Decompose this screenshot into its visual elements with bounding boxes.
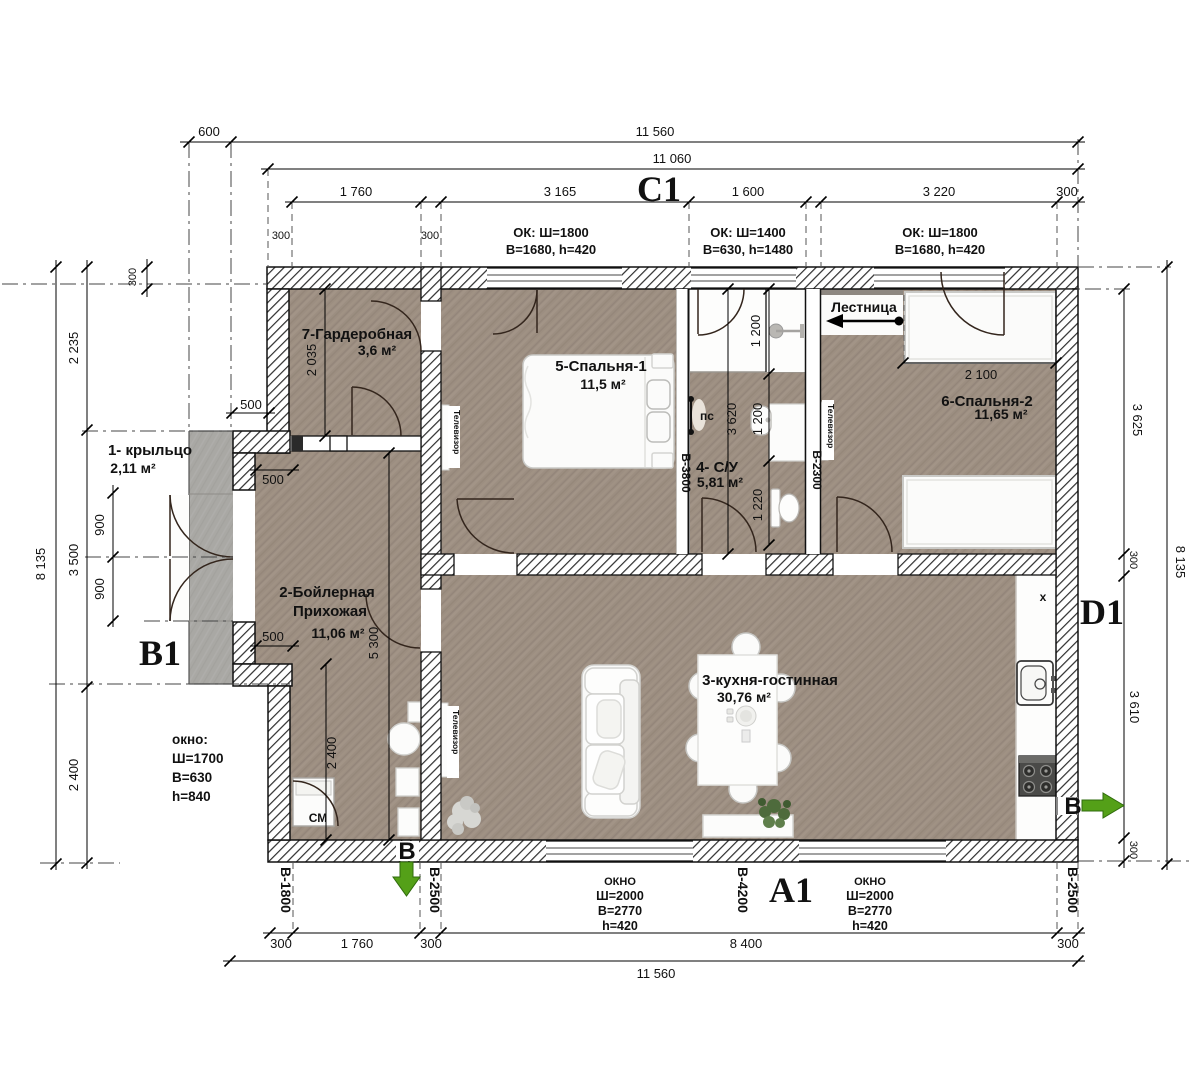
svg-text:11,65 м²: 11,65 м² [974, 406, 1028, 422]
svg-text:3 220: 3 220 [923, 184, 956, 199]
svg-text:Телевизор: Телевизор [451, 710, 461, 754]
svg-text:В=1680, h=420: В=1680, h=420 [895, 242, 985, 257]
svg-text:Лестница: Лестница [831, 299, 897, 315]
svg-text:300: 300 [1127, 551, 1139, 569]
svg-text:D1: D1 [1080, 592, 1124, 632]
svg-text:ОК: Ш=1400: ОК: Ш=1400 [710, 225, 786, 240]
svg-text:Телевизор: Телевизор [452, 410, 462, 454]
svg-text:1 220: 1 220 [750, 489, 765, 522]
svg-text:500: 500 [262, 472, 284, 487]
svg-text:300: 300 [420, 936, 442, 951]
svg-text:5,81 м²: 5,81 м² [697, 474, 743, 490]
svg-text:2 235: 2 235 [66, 332, 81, 365]
svg-text:Ш=1700: Ш=1700 [172, 751, 223, 766]
svg-text:500: 500 [240, 397, 262, 412]
svg-text:1- крыльцо: 1- крыльцо [108, 442, 192, 459]
svg-text:3,6 м²: 3,6 м² [358, 342, 397, 358]
svg-text:1 760: 1 760 [341, 936, 374, 951]
svg-text:h=420: h=420 [602, 919, 638, 933]
svg-text:1 200: 1 200 [748, 315, 763, 348]
svg-text:2,11 м²: 2,11 м² [110, 460, 156, 476]
svg-text:ОКНО: ОКНО [854, 876, 886, 888]
svg-text:3 500: 3 500 [66, 544, 81, 577]
svg-text:В-2500: В-2500 [427, 867, 443, 913]
svg-text:ОК: Ш=1800: ОК: Ш=1800 [513, 225, 589, 240]
svg-text:В-4200: В-4200 [735, 867, 751, 913]
svg-text:300: 300 [127, 268, 139, 286]
svg-text:300: 300 [272, 230, 290, 242]
svg-text:В=630: В=630 [172, 770, 212, 785]
svg-text:300: 300 [1057, 936, 1079, 951]
svg-text:11 560: 11 560 [636, 124, 675, 139]
svg-text:ОК: Ш=1800: ОК: Ш=1800 [902, 225, 978, 240]
svg-text:300: 300 [270, 936, 292, 951]
svg-text:11,06 м²: 11,06 м² [311, 625, 365, 641]
svg-text:3 610: 3 610 [1127, 691, 1142, 724]
svg-text:2 100: 2 100 [965, 367, 998, 382]
svg-text:11 060: 11 060 [653, 151, 692, 166]
svg-text:В=2770: В=2770 [598, 904, 642, 918]
svg-text:В-3800: В-3800 [679, 453, 693, 493]
svg-text:300: 300 [1127, 841, 1139, 859]
svg-text:3-кухня-гостинная: 3-кухня-гостинная [702, 672, 838, 689]
svg-text:900: 900 [92, 514, 107, 536]
svg-text:500: 500 [262, 629, 284, 644]
svg-text:x: x [1040, 590, 1047, 604]
svg-text:Прихожая: Прихожая [293, 603, 367, 620]
svg-text:B1: B1 [139, 633, 181, 673]
svg-text:2 400: 2 400 [324, 737, 339, 770]
svg-text:11,5 м²: 11,5 м² [580, 376, 626, 392]
svg-text:5 300: 5 300 [366, 627, 381, 660]
svg-text:h=840: h=840 [172, 789, 211, 804]
svg-text:Ш=2000: Ш=2000 [596, 889, 644, 903]
svg-text:В-2300: В-2300 [810, 450, 824, 490]
svg-text:В-2500: В-2500 [1065, 867, 1081, 913]
svg-text:СМ: СМ [309, 811, 328, 825]
svg-text:окно:: окно: [172, 732, 208, 747]
svg-text:В: В [1064, 793, 1081, 820]
svg-text:5-Спальня-1: 5-Спальня-1 [555, 358, 646, 375]
svg-text:B: B [398, 838, 415, 865]
svg-text:900: 900 [92, 578, 107, 600]
svg-text:2 035: 2 035 [304, 344, 319, 377]
svg-text:11 560: 11 560 [637, 966, 676, 981]
svg-text:30,76 м²: 30,76 м² [717, 689, 771, 705]
svg-text:пс: пс [700, 409, 714, 423]
svg-text:В=1680, h=420: В=1680, h=420 [506, 242, 596, 257]
svg-text:300: 300 [1056, 184, 1078, 199]
svg-text:В-1800: В-1800 [278, 867, 294, 913]
svg-text:8 135: 8 135 [33, 548, 48, 581]
svg-text:1 200: 1 200 [750, 403, 765, 436]
svg-text:h=420: h=420 [852, 919, 888, 933]
svg-text:3 625: 3 625 [1130, 404, 1145, 437]
svg-text:3 165: 3 165 [544, 184, 577, 199]
svg-text:1 600: 1 600 [732, 184, 765, 199]
svg-text:1 760: 1 760 [340, 184, 373, 199]
svg-text:Телевизор: Телевизор [826, 404, 836, 448]
svg-text:Ш=2000: Ш=2000 [846, 889, 894, 903]
svg-text:8 400: 8 400 [730, 936, 763, 951]
svg-text:3 620: 3 620 [724, 403, 739, 436]
svg-text:A1: A1 [769, 870, 813, 910]
svg-text:7-Гардеробная: 7-Гардеробная [302, 326, 412, 343]
svg-text:300: 300 [421, 230, 439, 242]
svg-text:C1: C1 [637, 169, 681, 209]
svg-text:ОКНО: ОКНО [604, 876, 636, 888]
svg-text:В=2770: В=2770 [848, 904, 892, 918]
svg-text:2-Бойлерная: 2-Бойлерная [279, 584, 375, 601]
svg-text:В=630, h=1480: В=630, h=1480 [703, 242, 793, 257]
svg-text:600: 600 [198, 124, 220, 139]
svg-text:2 400: 2 400 [66, 759, 81, 792]
svg-text:8 135: 8 135 [1173, 546, 1188, 579]
